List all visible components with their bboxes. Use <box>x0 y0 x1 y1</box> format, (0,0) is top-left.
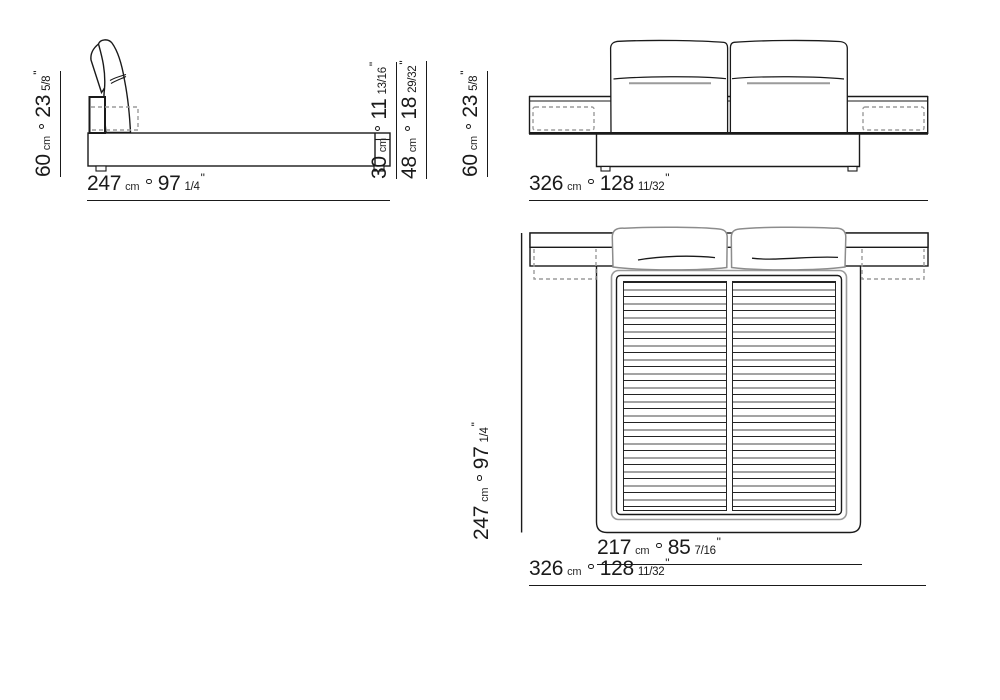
drawing-canvas: 247cm971/4" 60cm235/8" 30cm1113/16" 48cm… <box>0 0 1000 700</box>
front-nightstand-hidden-left <box>533 107 594 130</box>
unit-separator-dot <box>588 564 594 570</box>
top-shelf-band <box>530 233 928 247</box>
dim-top-total-width: 326cm12811/32" <box>529 552 926 586</box>
unit-separator-dot <box>656 543 662 549</box>
side-platform <box>88 133 390 166</box>
dim-top-depth: 247cm971/4" <box>465 422 496 540</box>
line-art <box>0 0 1000 700</box>
unit-separator-dot <box>405 126 411 132</box>
dim-side-width: 247cm971/4" <box>87 167 390 201</box>
unit-separator-dot <box>466 124 472 130</box>
front-nightstand-hidden-right <box>863 107 924 130</box>
dim-side-platform-height: 30cm1113/16" <box>363 62 397 179</box>
unit-separator-dot <box>588 179 594 185</box>
unit-separator-dot <box>146 179 152 185</box>
dim-front-width: 326cm12811/32" <box>529 167 928 201</box>
slat-grid-right <box>732 281 836 511</box>
unit-separator-dot <box>477 475 483 481</box>
top-pillow-right <box>731 227 846 270</box>
slat-grid-left <box>623 281 727 511</box>
front-view <box>529 40 928 171</box>
dim-front-height: 60cm235/8" <box>454 71 488 177</box>
top-pillow-left <box>612 227 727 270</box>
front-headrest-cushion-left <box>611 40 728 133</box>
front-headrest-cushion-right <box>730 40 847 133</box>
dim-side-height: 60cm235/8" <box>27 71 61 177</box>
front-platform <box>597 134 860 167</box>
side-nightstand <box>90 97 106 133</box>
unit-separator-dot <box>375 126 381 132</box>
top-view <box>530 227 928 532</box>
side-view <box>88 40 390 171</box>
dim-side-footend-height: 48cm1829/32" <box>393 61 427 179</box>
unit-separator-dot <box>39 124 45 130</box>
